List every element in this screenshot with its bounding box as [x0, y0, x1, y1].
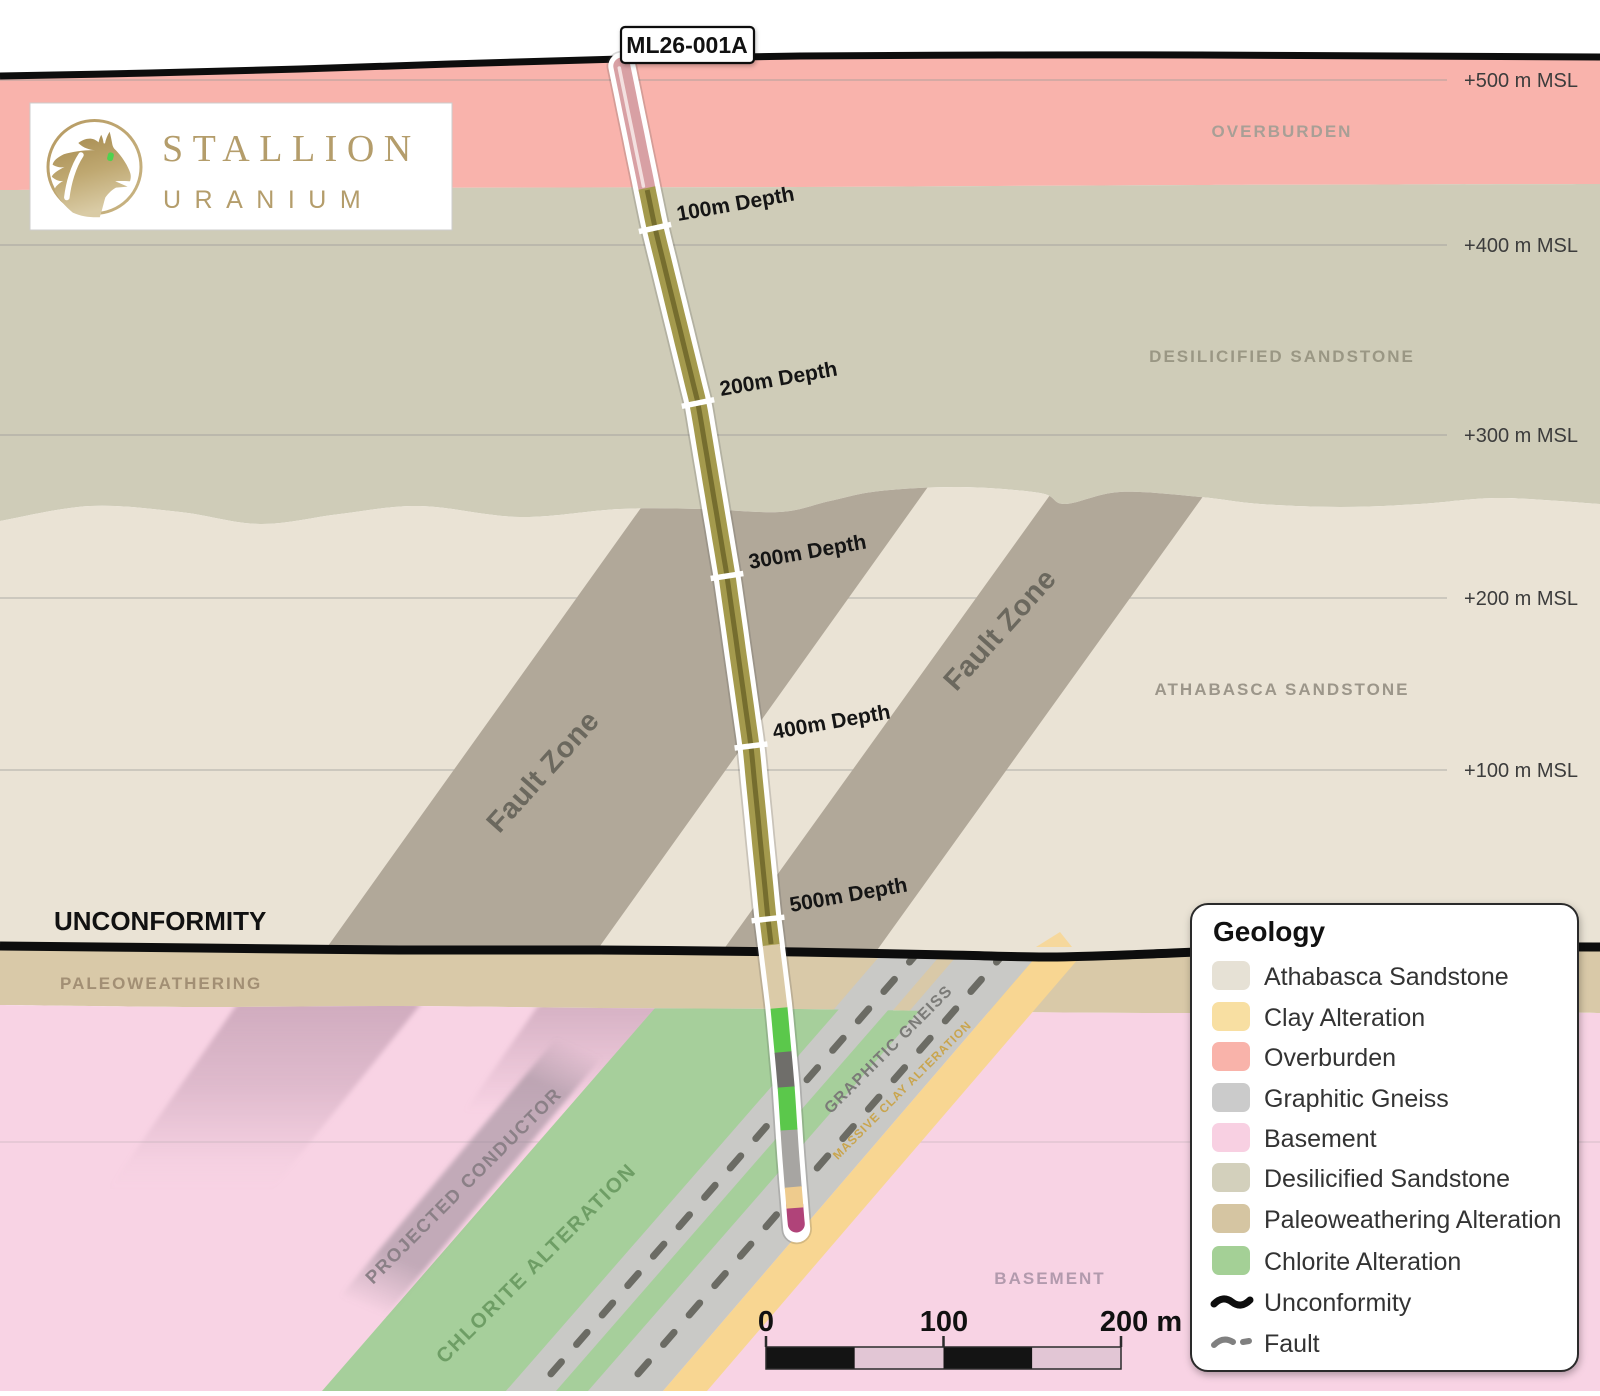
svg-text:Desilicified Sandstone: Desilicified Sandstone	[1264, 1165, 1510, 1193]
svg-text:Geology: Geology	[1213, 916, 1325, 947]
svg-text:+200 m MSL: +200 m MSL	[1464, 588, 1578, 610]
svg-text:+300 m MSL: +300 m MSL	[1464, 425, 1578, 447]
svg-text:Overburden: Overburden	[1264, 1044, 1396, 1072]
svg-text:URANIUM: URANIUM	[163, 186, 374, 214]
svg-text:DESILICIFIED SANDSTONE: DESILICIFIED SANDSTONE	[1149, 347, 1415, 366]
svg-text:PALEOWEATHERING: PALEOWEATHERING	[60, 974, 262, 993]
svg-text:100: 100	[920, 1306, 968, 1338]
svg-text:+500 m MSL: +500 m MSL	[1464, 70, 1578, 92]
svg-text:Chlorite Alteration: Chlorite Alteration	[1264, 1248, 1461, 1276]
svg-text:200 m: 200 m	[1100, 1306, 1182, 1338]
svg-text:Paleoweathering Alteration: Paleoweathering Alteration	[1264, 1206, 1561, 1234]
svg-text:Graphitic Gneiss: Graphitic Gneiss	[1264, 1085, 1449, 1113]
svg-text:ML26-001A: ML26-001A	[626, 32, 747, 58]
svg-text:Basement: Basement	[1264, 1125, 1377, 1153]
svg-text:BASEMENT: BASEMENT	[994, 1269, 1105, 1288]
svg-text:UNCONFORMITY: UNCONFORMITY	[54, 906, 266, 936]
svg-text:STALLION: STALLION	[162, 128, 421, 170]
svg-text:Athabasca Sandstone: Athabasca Sandstone	[1264, 963, 1509, 991]
svg-text:Fault: Fault	[1264, 1330, 1320, 1358]
svg-text:ATHABASCA SANDSTONE: ATHABASCA SANDSTONE	[1155, 680, 1410, 699]
svg-text:0: 0	[758, 1306, 774, 1338]
svg-text:Clay Alteration: Clay Alteration	[1264, 1004, 1425, 1032]
svg-text:OVERBURDEN: OVERBURDEN	[1212, 122, 1353, 141]
svg-text:Unconformity: Unconformity	[1264, 1289, 1412, 1317]
svg-text:+400 m MSL: +400 m MSL	[1464, 235, 1578, 257]
svg-text:+100 m MSL: +100 m MSL	[1464, 760, 1578, 782]
